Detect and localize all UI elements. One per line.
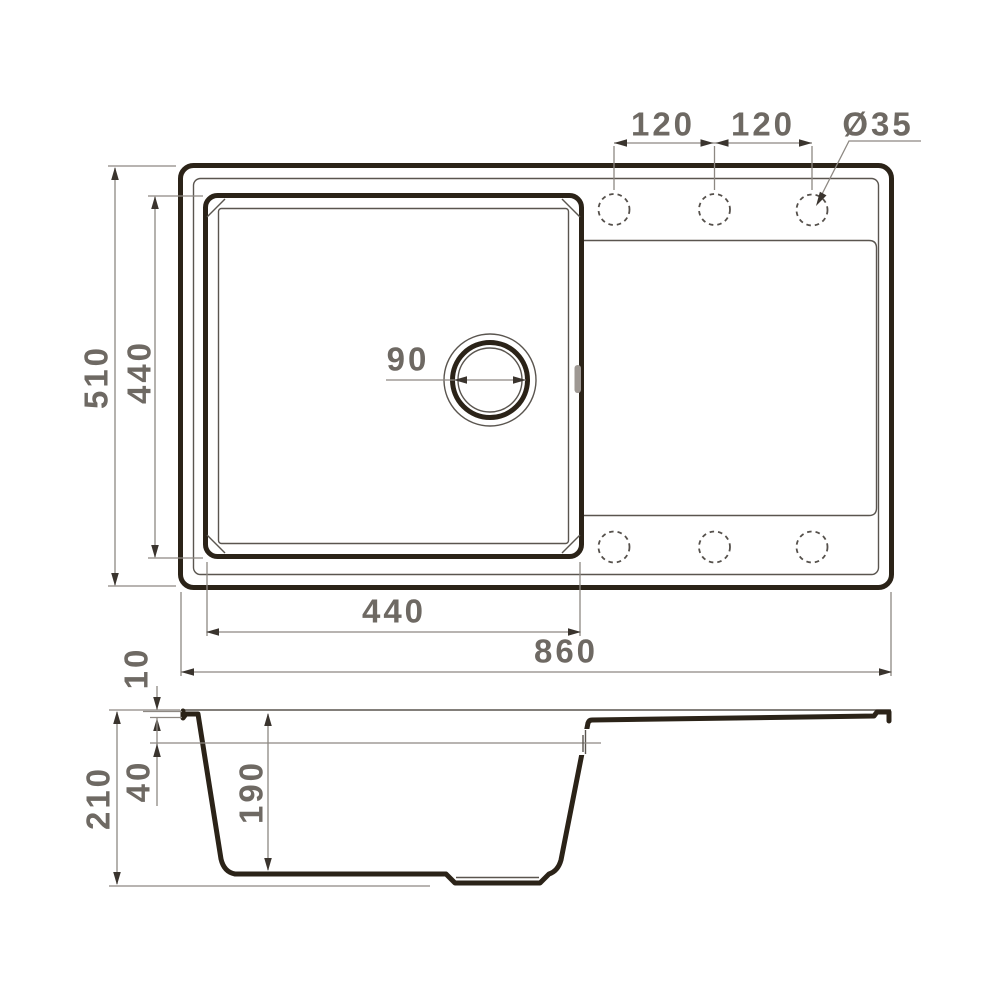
dim-label-rim-thickness: 10 [118, 647, 155, 690]
dim-label-bowl-inner-depth: 190 [233, 760, 270, 824]
top-view: 90 120 120 Ø35 510 [78, 106, 922, 677]
dim-label-hole-spacing-left: 120 [631, 106, 695, 143]
dim-label-depth-total: 510 [78, 345, 115, 409]
dim-label-width-total: 860 [534, 633, 598, 670]
overflow-slot [575, 365, 582, 393]
overflow-mark [150, 729, 601, 755]
dim-label-bowl-width: 440 [362, 593, 426, 630]
dim-width-total: 860 [181, 592, 892, 676]
section-profile [183, 711, 889, 883]
dim-label-height-total: 210 [80, 766, 117, 830]
dim-rim-thickness: 10 [118, 647, 183, 731]
drawing-canvas: 90 120 120 Ø35 510 [0, 0, 1000, 1000]
dim-label-hole-diameter: Ø35 [842, 106, 913, 143]
dim-label-hole-spacing-right: 120 [731, 106, 795, 143]
dim-bowl-inner-depth: 190 [233, 713, 272, 871]
dim-overflow-offset: 40 [120, 718, 161, 806]
dim-label-drain: 90 [387, 341, 430, 378]
section-view: 10 40 210 190 [80, 647, 892, 886]
dim-label-overflow-offset: 40 [120, 760, 157, 803]
dim-label-bowl-depth: 440 [121, 340, 158, 404]
sink-technical-drawing: 90 120 120 Ø35 510 [0, 0, 1000, 1000]
